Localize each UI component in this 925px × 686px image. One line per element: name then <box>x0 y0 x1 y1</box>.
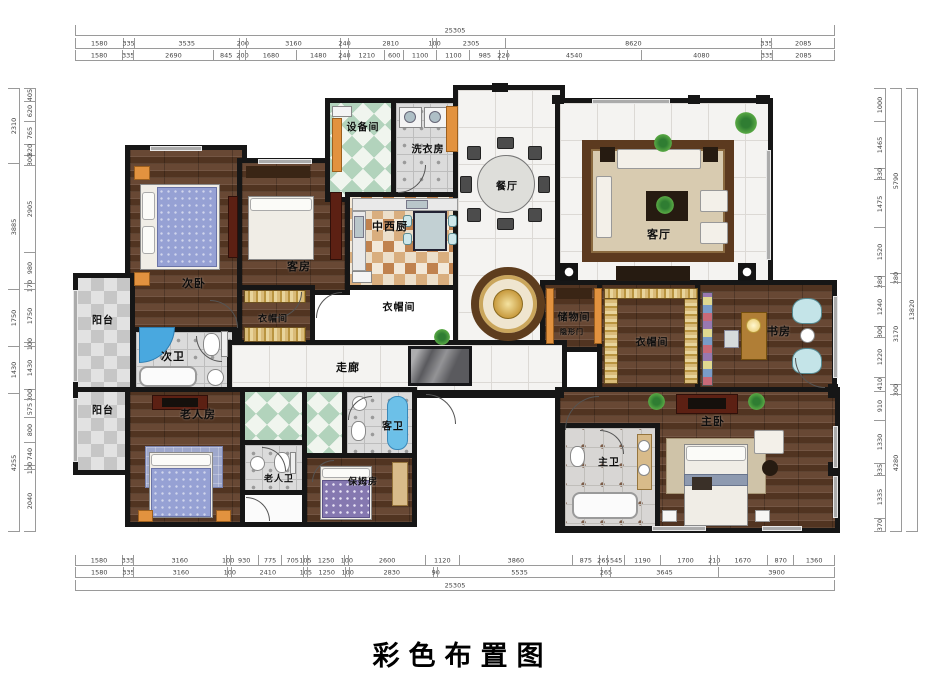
dimension-segment: 335 <box>122 50 133 61</box>
sink <box>638 464 650 476</box>
dimension-segment: 2690 <box>133 50 213 61</box>
dimension-segment: 1120 <box>425 555 459 566</box>
dimension-value: 2410 <box>260 568 277 576</box>
kitchen-sink <box>406 200 428 209</box>
dimension-segment: 330 <box>874 168 886 179</box>
plant <box>654 134 672 152</box>
dimension-segment: 200 <box>239 50 246 61</box>
dimension-segment: 870 <box>767 555 793 566</box>
plant <box>434 329 450 345</box>
tv <box>688 398 726 409</box>
dimension-value: 1750 <box>26 307 34 324</box>
dimension-segment: 1465 <box>874 121 886 168</box>
room-balcony-1 <box>78 278 130 392</box>
dimension-segment: 3535 <box>134 38 239 49</box>
dimension-segment: 1250 <box>307 555 344 566</box>
dimension-value: 1750 <box>10 310 18 327</box>
label-nanny-room: 保姆房 <box>348 475 378 488</box>
dimension-segment: 3900 <box>718 567 835 578</box>
wardrobe-shelf <box>684 292 698 384</box>
dimension-segment: 1480 <box>296 50 340 61</box>
dimension-segment: 280 <box>890 273 902 283</box>
dimension-value: 1360 <box>806 556 823 564</box>
dimension-segment: 775 <box>258 555 282 566</box>
desk-lamp <box>746 318 761 333</box>
armchair <box>754 430 784 454</box>
dimension-value: 980 <box>26 262 34 274</box>
dimension-value: 1100 <box>445 51 462 59</box>
dimension-value: 1520 <box>876 244 884 261</box>
stool <box>448 233 457 245</box>
room-green-b <box>307 392 347 458</box>
dimension-value: 3160 <box>285 39 302 47</box>
dimension-strip-top-total: 25305 <box>75 25 835 36</box>
label-second-bedroom: 次卧 <box>182 275 206 291</box>
dimension-value: 705 <box>286 556 298 564</box>
dimension-value: 1240 <box>876 299 884 316</box>
dimension-value: 985 <box>479 51 491 59</box>
column <box>738 263 756 281</box>
dimension-value: 870 <box>775 556 787 564</box>
wardrobe <box>246 166 310 178</box>
dimension-value: 3160 <box>173 568 190 576</box>
kitchen-counter <box>352 198 458 211</box>
dimension-segment: 280 <box>874 276 886 286</box>
dimension-value: 3535 <box>178 39 195 47</box>
washer-drum <box>429 111 441 123</box>
storage-shelf <box>556 288 592 299</box>
dimension-value: 4080 <box>693 51 710 59</box>
dimension-segment: 2040 <box>24 469 36 532</box>
label-balcony-2: 阳台 <box>92 402 114 417</box>
plant <box>648 393 665 410</box>
guest-room-door <box>316 292 342 318</box>
dimension-segment: 3860 <box>459 555 572 566</box>
armchair <box>792 298 822 324</box>
dimension-strip-right-total: 13820 <box>906 88 918 532</box>
dimension-value: 1430 <box>26 360 34 377</box>
dimension-strip-top-row1: 1580335353520031602402810100230586203352… <box>75 38 835 49</box>
dimension-strip-right-inner: 1000146533014751520280124030012204109101… <box>874 88 886 532</box>
label-balcony-1: 阳台 <box>92 312 114 327</box>
appliance <box>332 106 352 117</box>
window <box>258 159 312 164</box>
dimension-segment: 1750 <box>8 289 20 346</box>
label-master-bedroom: 主卧 <box>701 413 725 429</box>
floor-plan-canvas: 设备间洗衣房餐厅中西厨客厅次卧客房衣帽间衣帽间储物间隐形门衣帽间书房次卫阳台走廊… <box>0 0 925 686</box>
dimension-segment: 2410 <box>231 567 303 578</box>
dimension-segment: 1680 <box>245 50 295 61</box>
dimension-value: 8620 <box>625 39 642 47</box>
cabinet <box>332 118 342 172</box>
dimension-segment: 1475 <box>874 179 886 227</box>
dimension-segment: 1670 <box>717 555 767 566</box>
dimension-segment: 240 <box>340 50 348 61</box>
dimension-strip-bottom-total: 25305 <box>75 580 835 591</box>
dimension-segment: 1580 <box>75 567 123 578</box>
dimension-segment: 1520 <box>874 227 886 276</box>
dimension-segment: 765 <box>24 121 36 145</box>
tv-panel <box>330 192 342 260</box>
label-dining-room: 餐厅 <box>496 178 518 193</box>
dining-chair <box>460 176 472 193</box>
label-corridor: 走廊 <box>336 359 360 375</box>
dimension-value: 600 <box>388 51 400 59</box>
label-cloakroom-c: 衣帽间 <box>636 334 669 349</box>
dimension-value: 3900 <box>768 568 785 576</box>
dimension-segment: 3160 <box>246 38 340 49</box>
dimension-segment: 200 <box>239 38 246 49</box>
nightstand <box>216 510 231 522</box>
dimension-segment: 980 <box>24 252 36 282</box>
bed-tray <box>692 477 712 490</box>
dimension-segment: 2310 <box>8 88 20 163</box>
dining-chair <box>528 208 542 222</box>
label-master-bath: 主卫 <box>598 454 620 469</box>
quilt-second-bedroom <box>157 187 217 267</box>
dimension-segment: 1240 <box>874 286 886 326</box>
dimension-strip-bottom-row2: 1580335316010024101051250100283090553526… <box>75 567 835 578</box>
dimension-value: 2085 <box>795 51 812 59</box>
dimension-segment: 8620 <box>505 38 760 49</box>
dimension-segment: 930 <box>230 555 258 566</box>
dining-chair <box>528 146 542 160</box>
dimension-segment: 985 <box>469 50 499 61</box>
dimension-segment: 2600 <box>348 555 425 566</box>
dimension-value: 1100 <box>412 51 429 59</box>
dimension-value: 1120 <box>434 556 451 564</box>
dimension-value: 405 <box>26 89 34 101</box>
label-living-room: 客厅 <box>647 226 671 242</box>
dimension-segment: 25305 <box>75 580 835 591</box>
dimension-value: 3160 <box>172 556 189 564</box>
dimension-segment: 5790 <box>890 88 902 273</box>
dimension-value: 1580 <box>91 51 108 59</box>
label-guest-room: 客房 <box>287 258 311 274</box>
side-table <box>800 328 815 343</box>
dimension-value: 1250 <box>319 568 336 576</box>
dimension-segment: 1360 <box>793 555 835 566</box>
label-cloakroom-b: 衣帽间 <box>383 299 416 314</box>
label-equipment-room: 设备间 <box>347 119 380 134</box>
toilet <box>570 446 585 467</box>
dimension-segment: 1430 <box>8 346 20 393</box>
dining-chair <box>497 137 514 149</box>
dimension-segment: 1210 <box>348 50 384 61</box>
dimension-segment: 335 <box>874 463 886 475</box>
dimension-segment: 4255 <box>8 393 20 532</box>
dimension-value: 1250 <box>318 556 335 564</box>
stool <box>448 215 457 227</box>
dimension-segment: 335 <box>761 50 772 61</box>
cabinet <box>446 106 458 152</box>
window <box>766 150 771 260</box>
dimension-segment: 370 <box>874 518 886 532</box>
dimension-value: 1580 <box>91 39 108 47</box>
window <box>150 146 202 151</box>
wall-segment <box>552 95 564 104</box>
dimension-value: 1700 <box>677 556 694 564</box>
dimension-segment: 2085 <box>772 50 835 61</box>
window <box>762 526 802 531</box>
dimension-value: 13820 <box>908 300 916 321</box>
dimension-value: 4255 <box>10 454 18 471</box>
dimension-segment: 4540 <box>507 50 641 61</box>
stove <box>354 216 364 238</box>
dimension-segment: 265 <box>601 567 610 578</box>
plan-title: 彩色布置图 <box>0 634 925 673</box>
pillow <box>151 454 211 466</box>
dimension-value: 3885 <box>10 218 18 235</box>
dimension-value: 4540 <box>566 51 583 59</box>
window <box>592 99 670 104</box>
window <box>833 476 838 518</box>
dimension-strip-left-outer: 23103885175014304255 <box>8 88 20 532</box>
dimension-segment: 300 <box>24 389 36 399</box>
cabinet <box>594 288 602 344</box>
dimension-segment: 1190 <box>624 555 660 566</box>
dimension-segment: 845 <box>213 50 239 61</box>
dining-chair <box>497 218 514 230</box>
dimension-segment: 1000 <box>874 88 886 121</box>
floor-medallion-center <box>493 289 523 319</box>
dimension-value: 1480 <box>310 51 327 59</box>
dimension-value: 575 <box>26 403 34 415</box>
dimension-strip-right-mid: 579028031703004280 <box>890 88 902 532</box>
dimension-value: 2305 <box>463 39 480 47</box>
label-hidden-door: 隐形门 <box>560 327 584 337</box>
dimension-value: 1430 <box>10 362 18 379</box>
dimension-value: 800 <box>26 424 34 436</box>
dimension-segment: 410 <box>874 377 886 391</box>
dimension-value: 1465 <box>876 137 884 154</box>
dimension-segment: 1580 <box>75 555 122 566</box>
label-laundry-room: 洗衣房 <box>412 141 445 156</box>
dimension-value: 3860 <box>508 556 525 564</box>
dimension-value: 1335 <box>876 489 884 506</box>
dimension-segment: 5535 <box>437 567 601 578</box>
dimension-value: 930 <box>238 556 250 564</box>
dining-chair <box>467 146 481 160</box>
marble-inlay <box>408 346 472 386</box>
dimension-segment: 1335 <box>874 475 886 518</box>
dimension-segment: 1100 <box>436 50 469 61</box>
label-study: 书房 <box>767 323 791 339</box>
dimension-segment: 3160 <box>133 567 227 578</box>
dimension-segment: 335 <box>761 38 772 49</box>
dimension-value: 1680 <box>263 51 280 59</box>
side-table <box>703 147 718 162</box>
pillow <box>142 192 155 220</box>
side-table <box>600 147 615 162</box>
label-kitchen: 中西厨 <box>372 218 408 234</box>
dimension-value: 3170 <box>892 325 900 342</box>
dimension-strip-top-row2: 1580335269084520016801480240121060011001… <box>75 50 835 61</box>
dining-chair <box>467 208 481 222</box>
dimension-segment: 3645 <box>610 567 718 578</box>
dimension-segment: 1100 <box>403 50 436 61</box>
dimension-segment: 875 <box>572 555 598 566</box>
dimension-segment: 300 <box>874 326 886 337</box>
dimension-value: 3645 <box>656 568 673 576</box>
cabinet <box>352 271 372 283</box>
desk <box>392 462 408 506</box>
bookshelf <box>702 292 713 386</box>
wall-segment <box>756 95 770 104</box>
wall-segment <box>492 83 508 92</box>
dimension-value: 2690 <box>165 51 182 59</box>
label-elder-bath: 老人卫 <box>264 472 294 485</box>
room-corridor <box>232 345 562 392</box>
dimension-value: 2905 <box>26 201 34 218</box>
dimension-segment: 1330 <box>874 420 886 463</box>
dimension-value: 1670 <box>734 556 751 564</box>
desk-chair <box>724 330 739 348</box>
dimension-value: 875 <box>580 556 592 564</box>
dimension-value: 2810 <box>382 39 399 47</box>
cabinet <box>546 288 554 344</box>
dimension-segment: 4280 <box>890 394 902 532</box>
quilt-elder-room <box>151 468 211 517</box>
dimension-segment: 575 <box>24 399 36 417</box>
label-elder-room: 老人房 <box>180 406 216 422</box>
dimension-strip-bottom-row1: 1580335316010093077570510512501002600112… <box>75 555 835 566</box>
armchair <box>700 190 728 212</box>
dimension-segment: 3160 <box>133 555 226 566</box>
washer-drum <box>404 111 416 123</box>
dimension-segment: 1430 <box>24 346 36 390</box>
dimension-segment: 1220 <box>874 337 886 377</box>
dimension-value: 1000 <box>876 97 884 114</box>
dimension-segment: 3885 <box>8 163 20 289</box>
toilet-tank <box>221 331 228 357</box>
dimension-segment: 1700 <box>660 555 711 566</box>
dimension-segment: 265 <box>599 555 608 566</box>
dimension-segment: 3170 <box>890 282 902 383</box>
window <box>833 426 838 468</box>
toilet <box>351 421 366 441</box>
dimension-segment: 2830 <box>349 567 433 578</box>
dimension-segment: 1750 <box>24 289 36 342</box>
wardrobe-shelf <box>604 292 618 384</box>
dimension-value: 620 <box>26 105 34 117</box>
dimension-strip-left-inner: 4056207653203002905980170175010014303005… <box>24 88 36 532</box>
dimension-value: 545 <box>610 556 622 564</box>
plant <box>748 393 765 410</box>
dimension-segment: 1580 <box>75 50 122 61</box>
bench <box>596 176 612 238</box>
dimension-segment: 800 <box>24 417 36 442</box>
dimension-value: 1220 <box>876 349 884 366</box>
dimension-segment: 2810 <box>348 38 432 49</box>
nightstand <box>134 166 150 180</box>
dimension-segment: 620 <box>24 101 36 120</box>
window <box>833 296 838 378</box>
wall-segment <box>688 95 700 104</box>
dimension-segment: 335 <box>123 567 134 578</box>
dimension-value: 2830 <box>384 568 401 576</box>
label-cloakroom-a: 衣帽间 <box>258 312 288 325</box>
sofa <box>617 149 701 169</box>
window <box>73 398 78 462</box>
pillow <box>250 198 312 211</box>
dimension-segment: 405 <box>24 88 36 101</box>
label-guest-bath: 客卫 <box>382 418 404 433</box>
dimension-segment: 545 <box>607 555 624 566</box>
dimension-segment: 300 <box>890 384 902 395</box>
dimension-value: 910 <box>876 400 884 412</box>
dimension-segment: 4080 <box>641 50 761 61</box>
dining-chair <box>538 176 550 193</box>
dimension-value: 1330 <box>876 434 884 451</box>
floor-mat <box>662 510 677 522</box>
tv-console <box>616 266 690 281</box>
dimension-value: 4280 <box>892 455 900 472</box>
dimension-value: 2310 <box>10 118 18 135</box>
dimension-segment: 300 <box>24 155 36 165</box>
dimension-segment: 25305 <box>75 25 835 36</box>
dimension-value: 775 <box>264 556 276 564</box>
bathtub <box>572 492 638 519</box>
nightstand <box>134 272 150 286</box>
dimension-segment: 1580 <box>75 38 123 49</box>
entry-door <box>426 394 456 424</box>
dimension-value: 25305 <box>445 26 466 34</box>
dimension-value: 370 <box>876 519 884 531</box>
wall-segment <box>828 384 838 398</box>
dimension-value: 2600 <box>379 556 396 564</box>
kitchen-island <box>413 211 447 251</box>
window <box>652 526 706 531</box>
plant <box>735 112 757 134</box>
dimension-value: 740 <box>26 448 34 460</box>
dimension-value: 845 <box>220 51 232 59</box>
dimension-value: 2040 <box>26 492 34 509</box>
dimension-value: 410 <box>876 378 884 390</box>
pillow <box>686 446 746 461</box>
label-storage-room: 储物间 <box>558 309 591 324</box>
bathtub <box>139 366 197 387</box>
side-table <box>762 460 778 476</box>
wardrobe-shelf <box>604 288 698 299</box>
dimension-segment: 910 <box>874 391 886 421</box>
sink <box>638 440 650 452</box>
dimension-segment: 2905 <box>24 165 36 253</box>
nightstand <box>138 510 153 522</box>
dimension-value: 1475 <box>876 196 884 213</box>
dimension-segment: 13820 <box>906 88 918 532</box>
dimension-segment: 210 <box>710 555 717 566</box>
dimension-value: 1580 <box>91 556 108 564</box>
dimension-value: 1580 <box>91 568 108 576</box>
room-green-a <box>245 392 307 445</box>
tv-panel <box>228 196 238 258</box>
stool <box>403 233 412 245</box>
armchair <box>700 222 728 244</box>
pillow <box>142 226 155 254</box>
dimension-value: 5790 <box>892 172 900 189</box>
dimension-segment: 335 <box>123 38 134 49</box>
dimension-value: 25305 <box>445 581 466 589</box>
dimension-segment: 335 <box>122 555 133 566</box>
sink <box>207 369 224 386</box>
dimension-segment: 1250 <box>307 567 345 578</box>
dimension-segment: 240 <box>340 38 348 49</box>
label-second-bath: 次卫 <box>161 348 185 364</box>
dimension-segment: 2305 <box>436 38 505 49</box>
dimension-value: 5535 <box>511 568 528 576</box>
wardrobe-shelf <box>244 327 306 342</box>
